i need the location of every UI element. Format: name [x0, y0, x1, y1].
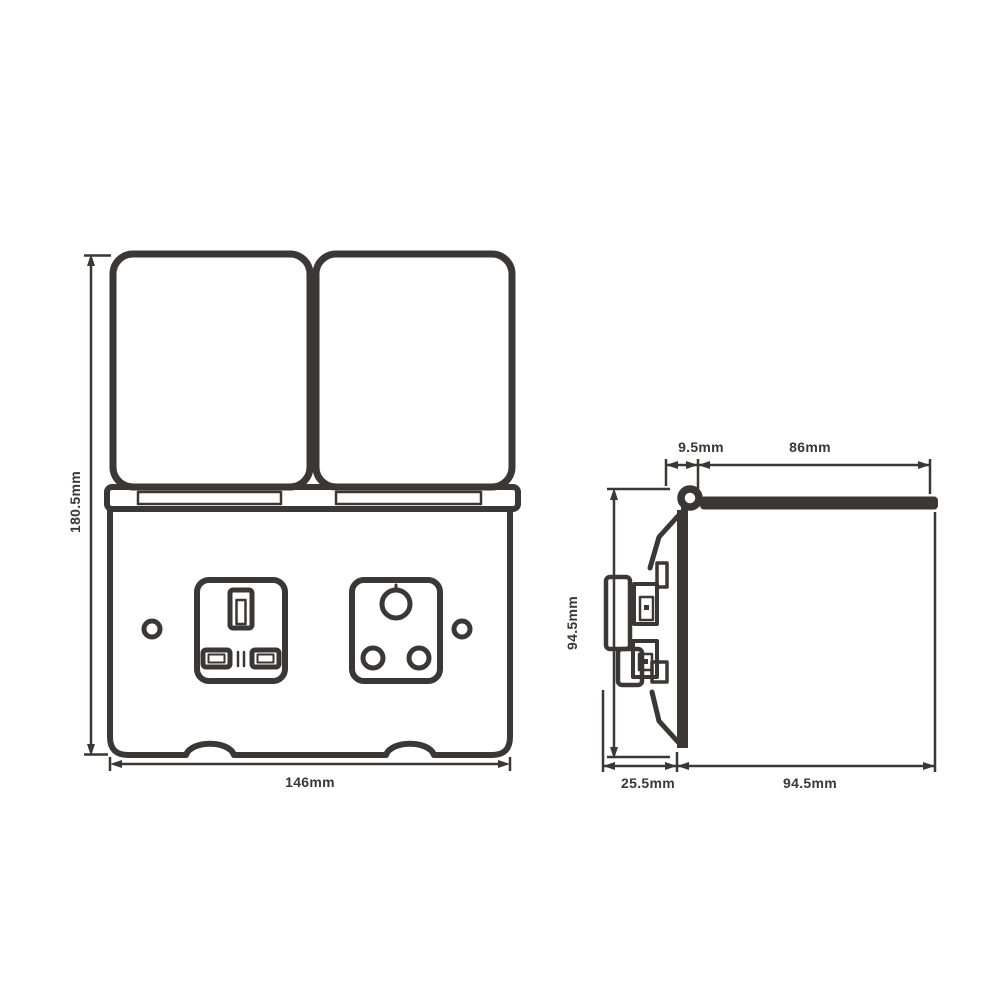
yoke-bottom	[652, 692, 678, 742]
cover-length-label: 86mm	[789, 439, 831, 455]
socket-dimension-diagram: 180.5mm 146mm	[0, 0, 1000, 1000]
front-left-cover	[113, 254, 310, 487]
earth-slot	[230, 590, 252, 628]
open-cover-depth-label: 94.5mm	[783, 775, 837, 791]
neutral-slot-shutter	[258, 655, 274, 663]
neutral-hole	[409, 648, 429, 668]
screw-hole-right	[454, 621, 470, 637]
earth-hole	[382, 590, 410, 618]
round-pin-outlet	[352, 580, 440, 681]
technical-drawing-canvas: 180.5mm 146mm	[0, 0, 1000, 1000]
hinge-knuckle	[681, 489, 699, 507]
yoke-top	[650, 516, 678, 568]
front-dimensions	[84, 254, 510, 771]
earth-slot-shutter	[237, 600, 246, 624]
side-view	[606, 489, 938, 748]
terminal-dot-2	[643, 659, 648, 664]
arrow-left	[110, 760, 122, 768]
arrow-right	[923, 762, 935, 770]
arrow-mid-left	[677, 762, 689, 770]
side-height-label: 94.5mm	[564, 596, 580, 650]
arrow-mid-right	[686, 461, 698, 469]
rectangular-pin-outlet	[197, 580, 285, 681]
hinge-offset-label: 9.5mm	[678, 439, 724, 455]
arrow-right	[918, 461, 930, 469]
faceplate-profile	[677, 510, 688, 748]
hinge-channel-right	[336, 492, 481, 504]
front-height-label: 180.5mm	[67, 471, 83, 533]
live-slot-shutter	[209, 655, 225, 663]
front-view	[107, 254, 518, 755]
neutral-slot	[252, 650, 279, 667]
live-slot	[203, 650, 230, 667]
arrow-right	[498, 760, 510, 768]
front-width-label: 146mm	[285, 774, 335, 790]
front-right-cover	[316, 254, 512, 487]
hinge-channel-left	[138, 492, 281, 504]
terminal-dot-1	[644, 605, 649, 610]
open-cover-profile	[700, 497, 938, 510]
arrow-mid-right	[665, 762, 677, 770]
arrow-mid-left	[698, 461, 710, 469]
screw-hole-left	[144, 621, 160, 637]
terminal-housing-upper	[606, 577, 630, 649]
live-hole	[363, 648, 383, 668]
arrow-left	[603, 762, 615, 770]
box-depth-label: 25.5mm	[621, 775, 675, 791]
arrow-left	[666, 461, 678, 469]
faceplate	[110, 509, 510, 755]
